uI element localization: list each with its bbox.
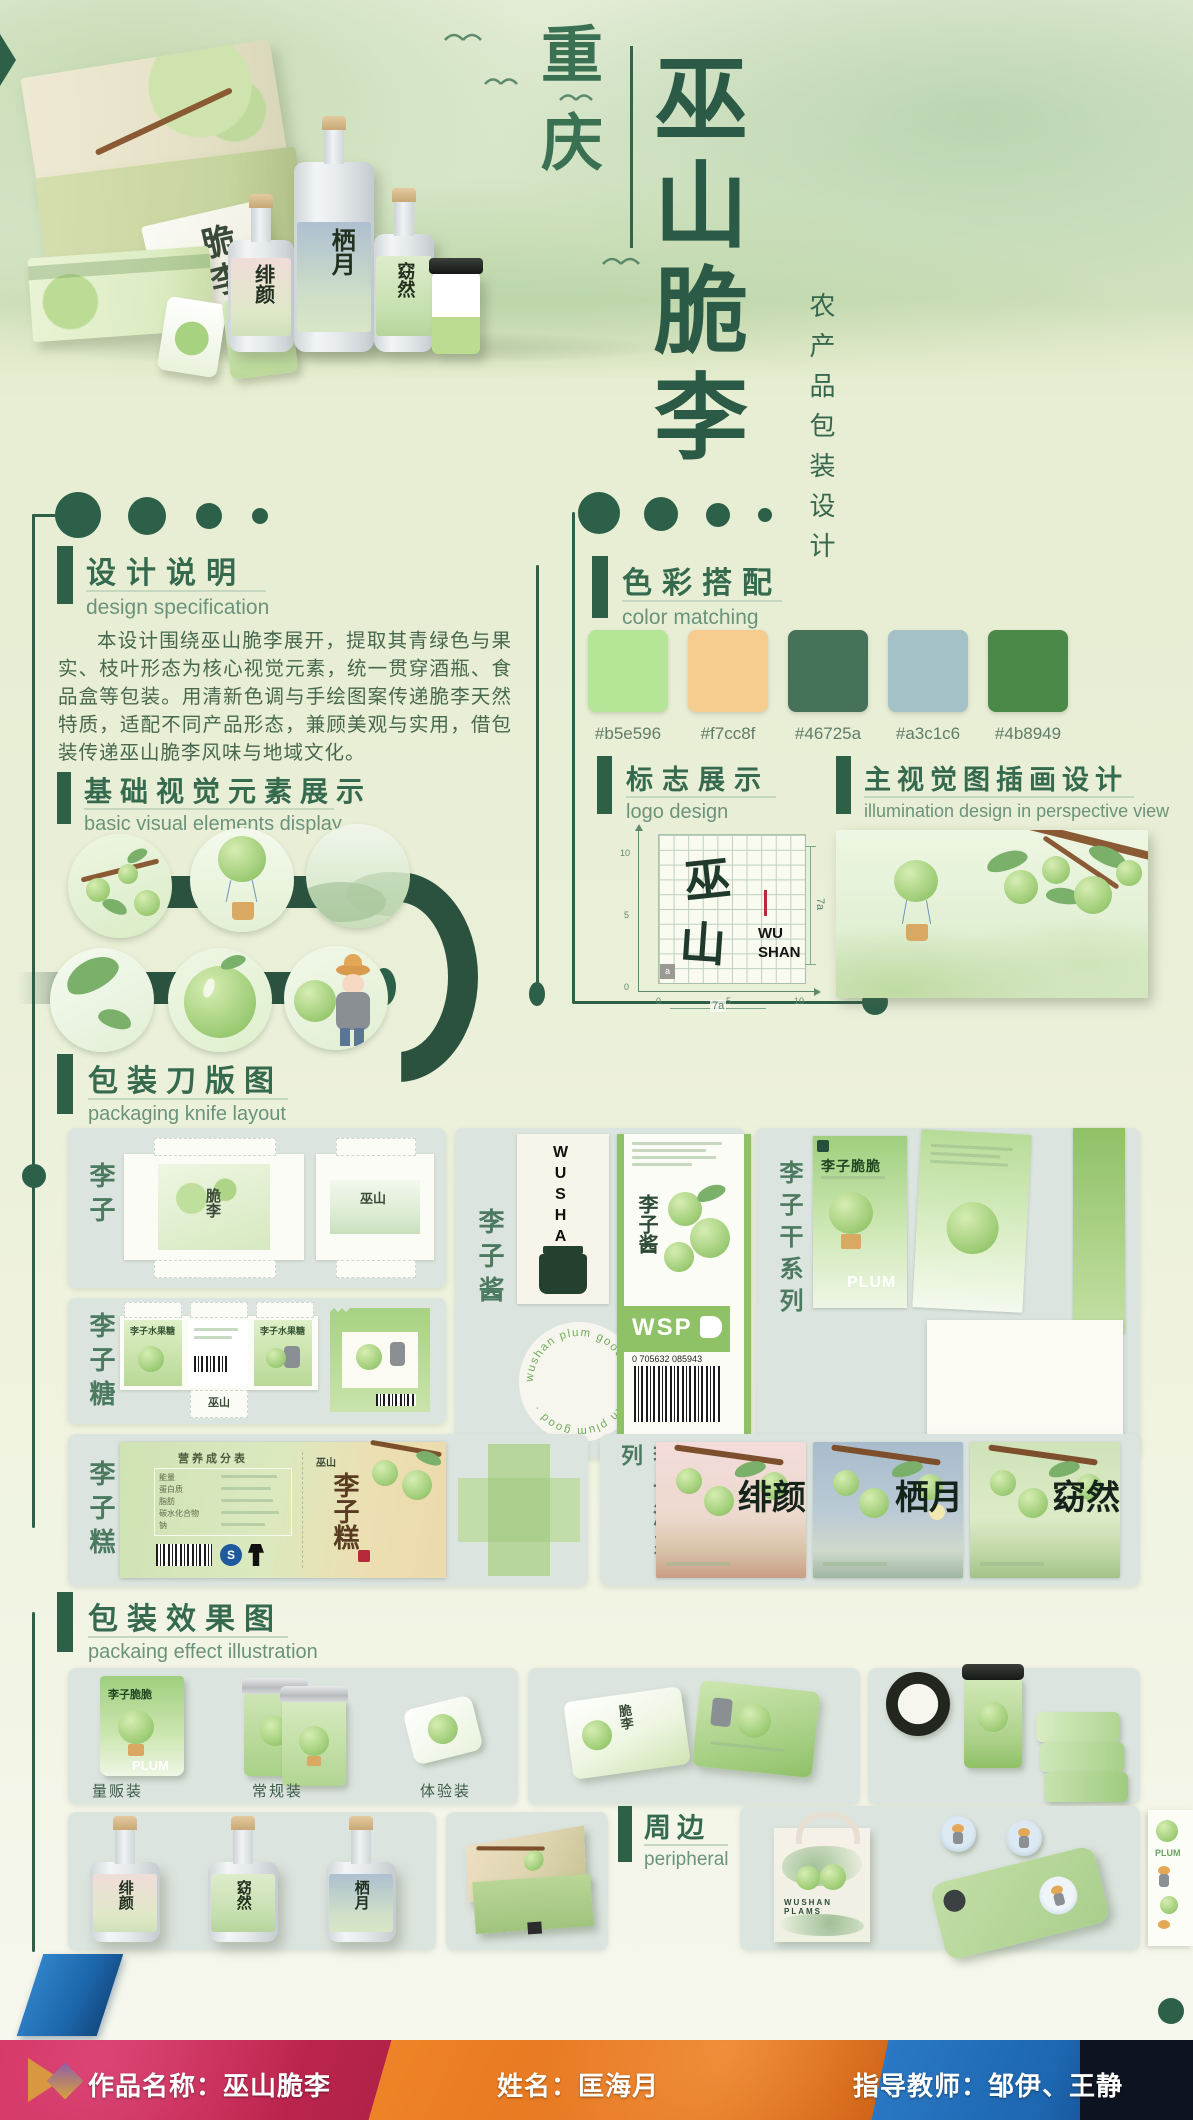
panel-effect-bottles: 绯颜 窈然 栖月 [68, 1812, 436, 1950]
fine-print-line [632, 1156, 716, 1159]
plum-balloon-icon [299, 1726, 329, 1756]
candy-brand-mark: 巫山 [208, 1394, 230, 1410]
color-swatch-2 [688, 630, 768, 712]
effect-sachet [402, 1694, 483, 1765]
title-divider-line [630, 46, 633, 248]
nutrition-row: 碳水化合物 [159, 1508, 199, 1519]
dieline-art: 巫山 [330, 1180, 420, 1234]
panel-peripheral: WUSHAN PLAMS [740, 1806, 1140, 1950]
bottle-neck [233, 1828, 253, 1864]
panel-effect-packs: 李子脆脆 PLUM 量贩装 常规装 体验装 [68, 1668, 518, 1804]
balloon-string [926, 900, 931, 924]
leaf-icon [60, 949, 124, 1002]
sticker-plum [1156, 1820, 1178, 1842]
cake-long-label: 营养成分表 能量 蛋白质 脂肪 碳水化合物 钠 S 巫山 李子糕 [120, 1442, 446, 1578]
logo-design-bar [597, 756, 612, 814]
qs-mark-icon: S [220, 1544, 242, 1566]
cross-center [488, 1478, 550, 1542]
main-visual-subtitle: illumination design in perspective view [864, 801, 1169, 822]
pouch-plum-en: PLUM [847, 1274, 896, 1292]
logo-x-axis [638, 991, 816, 992]
fine-print-line [632, 1163, 692, 1166]
peripheral-bar [618, 1806, 632, 1862]
knife-layout-bar [57, 1054, 73, 1114]
phone-camera-icon [941, 1887, 968, 1914]
leaf-icon [100, 895, 129, 917]
figure-icon [284, 1346, 300, 1368]
dieline-flap [336, 1138, 416, 1156]
logo-latin-shan: SHAN [758, 943, 801, 962]
boy-face [342, 974, 364, 994]
fine-print-line [821, 1176, 885, 1179]
y-axis-arrow [635, 824, 643, 831]
dieline-brand-mark: 巫山 [360, 1188, 386, 1207]
plum-icon [138, 1346, 164, 1372]
mini-figure-icon [1159, 1874, 1169, 1887]
effect-bar [57, 1592, 73, 1652]
plum-icon [1018, 1488, 1048, 1518]
footer-green-dot [1158, 1998, 1184, 2024]
panel-effect-pillow-packs: 脆李 [528, 1668, 860, 1804]
leaf-icon [96, 1005, 134, 1033]
panel-plum-dieline: 李子 脆李 巫山 [68, 1128, 446, 1288]
pouch-logo-chip [817, 1140, 829, 1152]
cake-cross-dieline [458, 1444, 580, 1576]
effect-underline [88, 1636, 288, 1638]
panel-wine-dieline: 李子酒系列 绯颜 栖月 窈然 [600, 1434, 1140, 1586]
bottle-label: 绯颜 [93, 1874, 157, 1932]
plum-icon [294, 980, 336, 1022]
basic-elements-title: 基础视觉元素展示 [84, 770, 372, 810]
left-rail-elbow [32, 514, 58, 517]
wine-label-qiyue: 栖月 [813, 1442, 963, 1578]
fine-print-line [666, 1562, 730, 1566]
logo-latin-wu: WU [758, 924, 783, 943]
box-pull-tab [527, 1921, 542, 1934]
dieline-flap [256, 1302, 314, 1318]
panel-dried-label: 李子干系列 [771, 1160, 806, 1320]
dots-right-2 [644, 497, 678, 531]
color-swatch-5 [988, 630, 1068, 712]
phone-case [929, 1845, 1111, 1961]
balloon-string [252, 880, 258, 902]
bottle-name: 窈然 [233, 1880, 254, 1910]
dots-right-3 [706, 503, 730, 527]
mini-hat-icon [1158, 1920, 1170, 1929]
y-tick-0: 0 [624, 982, 629, 992]
region-title: 重庆 [520, 22, 610, 292]
plum-icon [356, 1344, 382, 1370]
dim-bottom-label: 7a [710, 1000, 726, 1012]
color-matching-title: 色彩搭配 [622, 558, 782, 602]
plum-icon [580, 1718, 614, 1752]
mini-barcode [194, 1356, 228, 1372]
logo-char-shan: 山 [678, 906, 728, 975]
jar-lid-silhouette [543, 1246, 583, 1254]
bottle-cork [392, 188, 416, 202]
label-fold-line [302, 1452, 304, 1568]
peripheral-title: 周边 [644, 1806, 710, 1845]
nutrition-value-line [221, 1499, 273, 1502]
dim-line-right [810, 846, 811, 964]
cake-brand-mark: 巫山 [316, 1454, 336, 1469]
effect-bottle-qiyue: 栖月 [326, 1862, 396, 1942]
barcode [156, 1544, 212, 1566]
box-branch-art [95, 87, 233, 156]
main-visual-illustration [836, 830, 1148, 998]
effect-title: 包装效果图 [88, 1594, 283, 1638]
footer-bar: 作品名称：巫山脆李 姓名：匡海月 指导教师：邹伊、王静 [0, 2040, 1193, 2120]
effect-jar-front [282, 1698, 346, 1786]
fine-print-line [931, 1144, 1013, 1151]
plum-icon [402, 1470, 432, 1500]
tidy-man-icon [248, 1544, 264, 1566]
left-rail-line [32, 514, 35, 1528]
plum-icon [820, 1864, 846, 1890]
dieline-art-chars: 脆李 [202, 1188, 223, 1248]
nutrition-row: 脂肪 [159, 1496, 175, 1507]
nutrition-row: 蛋白质 [159, 1484, 183, 1495]
effect-pouch: 李子脆脆 PLUM [100, 1676, 184, 1776]
fine-print-line [632, 1142, 722, 1145]
mid-rail-line-2 [536, 565, 539, 985]
sticker-sheet: PLUM [1148, 1810, 1193, 1946]
candy-face: 李子水果糖 [254, 1320, 312, 1386]
y-tick-10: 10 [620, 848, 630, 858]
plum-balloon-icon [218, 836, 266, 882]
panel-cake-label: 李子糕 [82, 1460, 119, 1562]
bottle-cork [322, 116, 346, 130]
hero-jar [432, 272, 480, 354]
tote-handle [796, 1812, 860, 1844]
logo-design-title: 标志展示 [626, 758, 770, 797]
mini-barcode [376, 1394, 416, 1406]
dried-pouch-back [912, 1129, 1031, 1313]
wrapper-window [342, 1332, 418, 1388]
swatch-hex-2: #f7cc8f [688, 724, 768, 744]
bottle-neck [351, 1828, 371, 1864]
left-rail-dot [22, 1164, 46, 1188]
effect-bottle-yaoran: 窈然 [208, 1862, 278, 1942]
dim-cap [805, 846, 816, 847]
boy-leg [340, 1028, 350, 1046]
mini-figure-icon [1019, 1836, 1029, 1848]
nutrition-value-line [221, 1487, 271, 1490]
design-spec-title: 设计说明 [86, 548, 246, 592]
jar-dark-lid [962, 1664, 1024, 1680]
fine-print-line [710, 1741, 784, 1752]
barcode [634, 1366, 720, 1422]
dieline-art: 脆李 [158, 1164, 270, 1250]
dieline-flap [190, 1302, 248, 1318]
phone-popsocket [1035, 1872, 1081, 1918]
bottle-label: 绯颜 [231, 258, 292, 336]
hero-bottle-yaoran: 窈然 [374, 234, 434, 352]
plum-icon [425, 1711, 461, 1747]
logo-design-subtitle: logo design [626, 801, 728, 824]
panel-dried-dieline: 李子干系列 李子脆脆 PLUM [755, 1128, 1140, 1458]
bottle-neck [394, 200, 414, 236]
logo-char-wu: 巫 [681, 842, 734, 912]
x-axis-arrow [814, 988, 821, 996]
element-plum-branch-circle [68, 834, 172, 938]
plum-icon [118, 864, 138, 884]
design-spec-body: 本设计围绕巫山脆李展开，提取其青绿色与果实、枝叶形态为核心视觉元素，统一贯穿酒瓶… [58, 628, 512, 768]
boy-leg [354, 1028, 364, 1046]
dots-left-2 [128, 497, 166, 535]
bottle-cork [349, 1816, 373, 1830]
logo-design-underline [626, 796, 776, 798]
wsp-wordmark: WSP [632, 1314, 693, 1342]
swatch-hex-3: #46725a [788, 724, 868, 744]
bottle-cork [249, 194, 273, 208]
candy-box-net: 李子水果糖 李子水果糖 巫山 [120, 1316, 318, 1390]
pouch-plum-en: PLUM [132, 1758, 169, 1773]
wine-label-yaoran: 窈然 [970, 1442, 1120, 1578]
footer-author-name: 姓名：匡海月 [497, 2066, 659, 2103]
knife-layout-subtitle: packaging knife layout [88, 1103, 286, 1126]
plum-icon [524, 1849, 544, 1873]
fine-print-line [930, 1160, 1008, 1167]
balloon-basket-icon [841, 1234, 861, 1249]
plum-dieline-1: 脆李 [124, 1154, 304, 1260]
nutrition-value-line [221, 1523, 265, 1526]
candy-wrapper-dieline [330, 1308, 430, 1412]
bottle-cork [113, 1816, 137, 1830]
dots-left-4 [252, 508, 268, 524]
balloon-basket-icon [307, 1756, 321, 1766]
fine-print-line [194, 1336, 232, 1339]
sticker-wordmark: PLUM [1155, 1848, 1181, 1858]
jar-silhouette-icon [539, 1254, 587, 1294]
main-visual-bar [836, 756, 851, 814]
bottle-label: 窈然 [211, 1874, 275, 1932]
jam-label-vertical-name: 李子酱 [632, 1194, 661, 1314]
poster-subtitle: 农产品包装设计 [802, 292, 839, 572]
jam-brand-vertical: WUSHAN [551, 1144, 569, 1244]
left-rail-line-2 [32, 1612, 35, 1952]
plum-icon [833, 1470, 859, 1496]
hero-sachet-white [157, 296, 228, 378]
flat-box-band [28, 254, 211, 281]
plum-balloon-icon [118, 1710, 154, 1744]
y-tick-5: 5 [624, 910, 629, 920]
pillow-pack-white: 脆李 [563, 1686, 691, 1780]
knife-layout-title: 包装刀版图 [88, 1056, 283, 1100]
plum-icon [945, 1201, 1000, 1256]
bottle-name: 绯颜 [249, 264, 278, 304]
fine-print-line [823, 1562, 887, 1566]
bottle-name: 窈然 [392, 262, 418, 298]
hat-top-icon [344, 954, 362, 966]
sachet-stack-2 [1040, 1742, 1124, 1772]
panel-cake-dieline: 李子糕 营养成分表 能量 蛋白质 脂肪 碳水化合物 钠 S [68, 1434, 588, 1586]
pack-label-trial: 体验装 [420, 1780, 471, 1801]
footer-blue-accent [17, 1954, 124, 2036]
nutrition-value-line [221, 1475, 277, 1478]
wine-name-char: 绯颜 [738, 1470, 806, 1519]
logo-y-axis [638, 830, 639, 992]
panel-plum-label: 李子 [82, 1162, 119, 1230]
bottle-label: 窈然 [376, 256, 431, 336]
sachet-stack-1 [1036, 1712, 1120, 1742]
fine-print-line [980, 1562, 1044, 1566]
design-spec-bar [57, 546, 73, 604]
branch-icon [988, 1444, 1098, 1465]
pillow-pack-chars: 脆李 [614, 1703, 641, 1763]
wsp-logo-shape [700, 1316, 722, 1338]
main-visual-title: 主视觉图插画设计 [864, 758, 1128, 797]
pouch-title: 李子脆脆 [821, 1156, 881, 1176]
panel-jam-label: 李子酱 [471, 1208, 508, 1310]
plum-balloon-icon [894, 860, 938, 902]
bottle-label: 栖月 [297, 222, 371, 332]
bottle-neck [251, 206, 271, 242]
plum-icon [1074, 876, 1112, 914]
color-swatch-1 [588, 630, 668, 712]
jar-silver-lid [280, 1686, 348, 1702]
color-matching-subtitle: color matching [622, 606, 759, 630]
basic-elements-bar [57, 772, 71, 824]
pouch-title: 李子脆脆 [108, 1686, 152, 1702]
dots-left-3 [196, 503, 222, 529]
bottle-label: 栖月 [329, 1874, 393, 1932]
mini-figure-icon [1053, 1892, 1066, 1906]
main-visual-underline [864, 796, 1134, 798]
peripheral-underline [644, 1844, 728, 1846]
plum-icon [704, 1486, 734, 1516]
tote-bag: WUSHAN PLAMS [774, 1828, 870, 1942]
dieline-flap [154, 1260, 276, 1278]
plum-icon [1042, 856, 1070, 884]
wine-name-char: 窈然 [1052, 1470, 1120, 1519]
plum-balloon-icon [829, 1192, 873, 1234]
nutrition-value-line [221, 1511, 279, 1514]
logo-diagram: 10 5 0 0 5 10 巫 山 WU SHAN 7a 7a a [618, 830, 828, 1016]
red-seal-icon [358, 1550, 370, 1562]
wsp-band: WSP [624, 1306, 730, 1352]
pack-label-regular: 常规装 [252, 1780, 303, 1801]
hero-bottle-feiyan: 绯颜 [228, 240, 294, 352]
dots-right-4 [758, 508, 772, 522]
pack-label-bulk: 量贩装 [92, 1780, 143, 1801]
color-swatch-4 [888, 630, 968, 712]
panel-jam-dieline: 李子酱 WUSHAN wushan plum good · wushan plu… [455, 1128, 745, 1458]
bottle-name: 栖月 [323, 228, 358, 276]
color-matching-underline [622, 600, 782, 602]
giftbox-base-3d [472, 1874, 593, 1934]
leaf-icon [694, 1181, 727, 1205]
swatch-hex-1: #b5e596 [588, 724, 668, 744]
jar-top-view [886, 1672, 950, 1736]
dim-cap [805, 964, 816, 965]
branch-icon [831, 1444, 941, 1465]
tote-hills-art [780, 1914, 864, 1936]
figure-icon [710, 1697, 733, 1727]
plum-icon [676, 1468, 702, 1494]
dried-side-strip [1073, 1128, 1125, 1333]
plum-icon [184, 966, 256, 1038]
plum-icon [266, 1348, 286, 1368]
x-tick-5: 5 [726, 996, 731, 1006]
sachet-stack-3 [1044, 1772, 1128, 1802]
plum-icon [990, 1470, 1016, 1496]
logo-red-tick [764, 890, 767, 916]
jam-wsp-label: 李子酱 WSP 0 705632 085943 [617, 1134, 751, 1450]
sticker-plum [1160, 1896, 1178, 1914]
candy-box-title: 李子水果糖 [260, 1324, 305, 1337]
balloon-basket-icon [128, 1744, 144, 1756]
panel-candy-label: 李子糖 [82, 1312, 119, 1414]
nutrition-table: 能量 蛋白质 脂肪 碳水化合物 钠 [154, 1468, 292, 1536]
boy-body [336, 992, 370, 1030]
wine-name-char: 栖月 [895, 1470, 963, 1519]
bottle-neck [324, 128, 344, 164]
dried-pouch-front: 李子脆脆 PLUM [813, 1136, 907, 1308]
panel-effect-giftbox [446, 1812, 608, 1950]
dots-right-1 [578, 492, 620, 534]
element-plum-circle [168, 948, 272, 1052]
element-balloon-circle [190, 828, 294, 932]
color-swatch-3 [788, 630, 868, 712]
bottle-name: 绯颜 [115, 1880, 136, 1910]
plum-icon [859, 1488, 889, 1518]
plum-balloon-icon [978, 1702, 1008, 1732]
bottle-cork [231, 1816, 255, 1830]
popsocket-2 [1006, 1820, 1042, 1856]
plum-dieline-2: 巫山 [316, 1154, 434, 1260]
balloon-basket-icon [232, 902, 254, 920]
plum-icon [690, 1218, 730, 1258]
effect-subtitle: packaing effect illustration [88, 1641, 318, 1664]
footer-teacher-names: 指导教师：邹伊、王静 [853, 2066, 1123, 2103]
dim-right-label: 7a [814, 898, 826, 910]
panel-candy-dieline: 李子糖 李子水果糖 李子水果糖 巫山 [68, 1298, 446, 1424]
element-farmer-boy-circle [284, 946, 388, 1050]
element-landscape-circle [306, 824, 410, 928]
plum-icon [664, 1242, 694, 1272]
plum-icon [1116, 860, 1142, 886]
fine-print-line [194, 1328, 238, 1331]
jar-lid [429, 258, 483, 274]
bottle-neck [115, 1828, 135, 1864]
panel-effect-jar-set [868, 1668, 1140, 1804]
dried-blank-sheet [927, 1320, 1123, 1452]
mini-figure-icon [953, 1832, 963, 1844]
footer-work-name: 作品名称：巫山脆李 [88, 2066, 331, 2103]
dots-left-1 [55, 492, 101, 538]
design-spec-subtitle: design specification [86, 596, 269, 620]
nutrition-title: 营养成分表 [178, 1450, 248, 1466]
x-tick-10: 10 [794, 996, 804, 1006]
bottle-name: 栖月 [351, 1880, 372, 1910]
mid-rail-dot [529, 982, 545, 1006]
plum-icon [372, 1460, 398, 1486]
balloon-string [226, 880, 232, 902]
swatch-hex-4: #a3c1c6 [888, 724, 968, 744]
candy-box-title: 李子水果糖 [130, 1324, 175, 1337]
dieline-flap [336, 1260, 416, 1278]
effect-bottle-feiyan: 绯颜 [90, 1862, 160, 1942]
swatch-hex-5: #4b8949 [988, 724, 1068, 744]
plum-icon [1004, 870, 1038, 904]
x-tick-0: 0 [656, 996, 661, 1006]
fine-print-line [632, 1149, 706, 1152]
nutrition-row: 钠 [159, 1520, 167, 1531]
plum-icon [735, 1702, 772, 1739]
effect-jar-side [964, 1676, 1022, 1768]
candy-face: 李子水果糖 [124, 1320, 182, 1386]
